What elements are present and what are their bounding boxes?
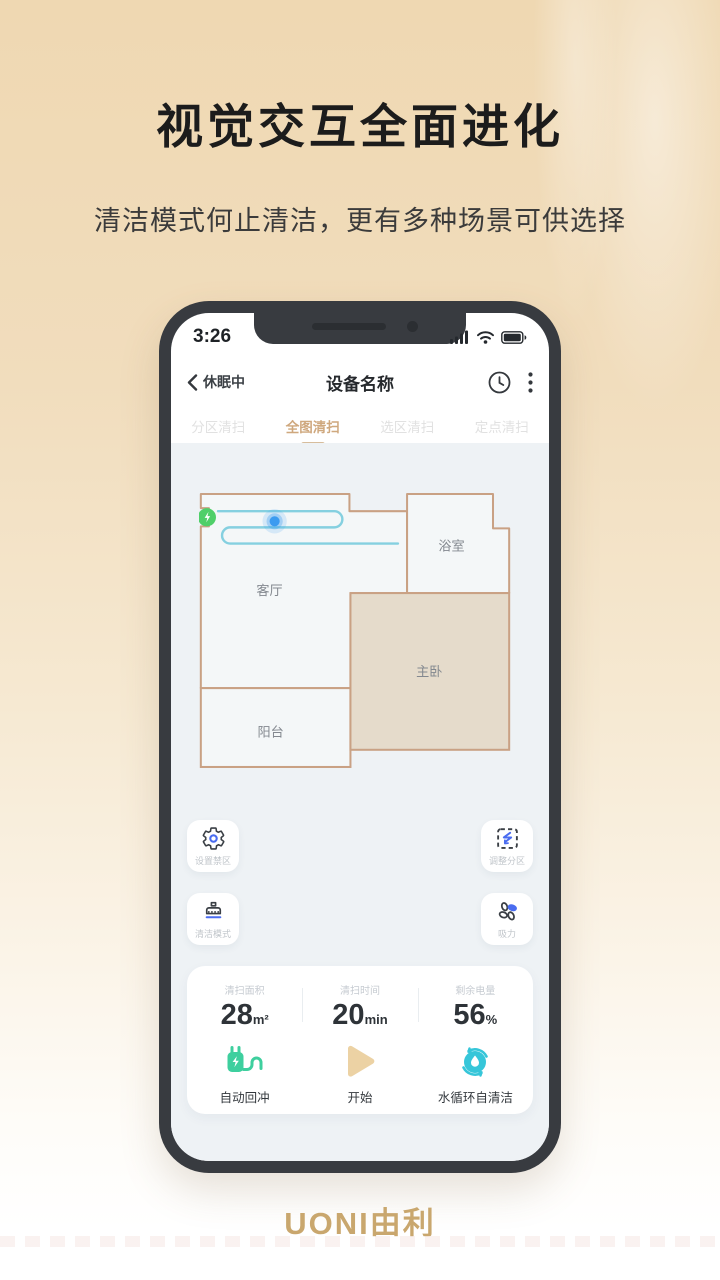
adjust-partition-button[interactable]: 调整分区 (481, 820, 533, 872)
signal-icon (450, 330, 470, 344)
status-bar: 3:26 (171, 321, 549, 353)
recharge-plug-icon (224, 1044, 266, 1080)
phone-screen: 3:26 设备名称 休眠中 (171, 313, 549, 1161)
room-label-balcony: 阳台 (257, 725, 283, 740)
page-perforation-divider (0, 1236, 720, 1247)
robot-position-dot (262, 509, 286, 533)
suction-button[interactable]: 吸力 (481, 893, 533, 945)
page-title: 视觉交互全面进化 (0, 88, 720, 157)
phone-mockup: 3:26 设备名称 休眠中 (159, 301, 561, 1173)
start-button[interactable]: 开始 (302, 1044, 417, 1106)
fan-icon (495, 899, 520, 924)
status-panel: 清扫面积 28m² 清扫时间 20min 剩余电量 56% 自动回冲 (187, 966, 533, 1114)
clean-mode-button[interactable]: 清洁模式 (187, 893, 239, 945)
play-icon (344, 1044, 376, 1080)
clean-mode-tabs: 分区清扫 全图清扫 选区清扫 定点清扫 (171, 409, 549, 443)
stat-clean-time: 清扫时间 20min (302, 982, 417, 1030)
battery-icon (501, 331, 527, 344)
room-label-master: 主卧 (416, 664, 442, 679)
room-label-bathroom: 浴室 (438, 538, 464, 554)
room-label-living: 客厅 (256, 582, 282, 598)
bottom-white-strip (0, 1247, 720, 1280)
floor-map[interactable]: 客厅 浴室 主卧 阳台 (199, 493, 511, 769)
auto-recharge-button[interactable]: 自动回冲 (187, 1044, 302, 1106)
self-clean-button[interactable]: 水循环自清洁 (418, 1044, 533, 1106)
tab-spot-clean[interactable]: 定点清扫 (455, 409, 550, 443)
tab-full-map-clean[interactable]: 全图清扫 (266, 409, 361, 443)
self-clean-icon (456, 1044, 494, 1080)
nav-bar: 设备名称 休眠中 (171, 365, 549, 399)
history-clock-button[interactable] (488, 371, 511, 394)
hero-section: 视觉交互全面进化 清洁模式何止清洁，更有多种场景可供选择 (0, 88, 720, 238)
stat-clean-area: 清扫面积 28m² (187, 982, 302, 1030)
partition-adjust-icon (495, 826, 520, 851)
tab-zone-clean[interactable]: 选区清扫 (360, 409, 455, 443)
wifi-icon (476, 330, 495, 344)
status-time: 3:26 (193, 326, 231, 348)
brush-icon (201, 899, 226, 924)
gear-icon (201, 826, 226, 851)
stat-battery: 剩余电量 56% (418, 982, 533, 1030)
no-go-zone-button[interactable]: 设置禁区 (187, 820, 239, 872)
tab-partition-clean[interactable]: 分区清扫 (171, 409, 266, 443)
page-subtitle: 清洁模式何止清洁，更有多种场景可供选择 (0, 199, 720, 238)
kebab-menu-button[interactable] (528, 372, 533, 393)
